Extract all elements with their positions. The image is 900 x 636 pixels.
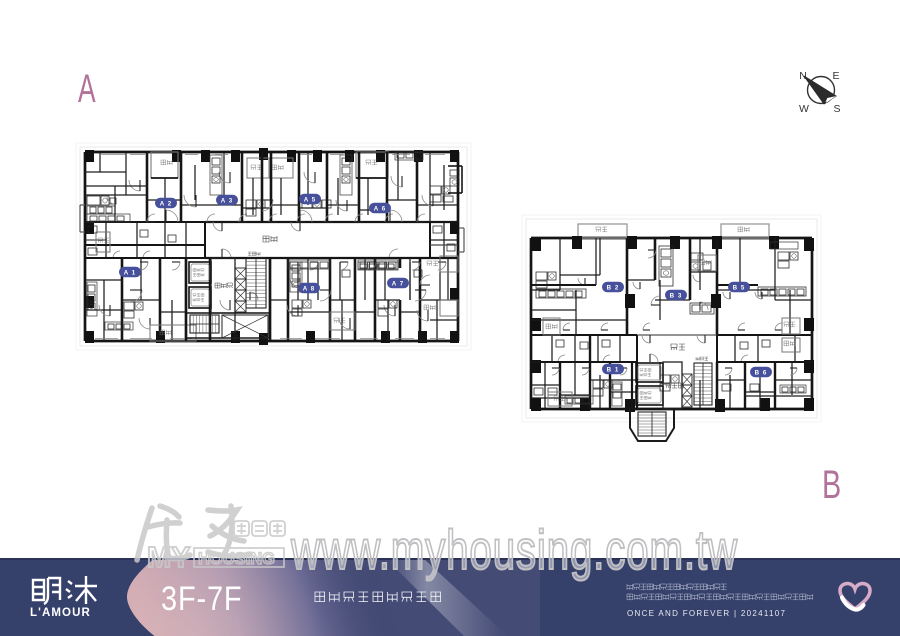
svg-text:L'AMOUR: L'AMOUR bbox=[30, 607, 91, 619]
svg-text:ONCE AND FOREVER | 20241107: ONCE AND FOREVER | 20241107 bbox=[627, 609, 786, 618]
svg-text:3F-7F: 3F-7F bbox=[161, 579, 242, 618]
